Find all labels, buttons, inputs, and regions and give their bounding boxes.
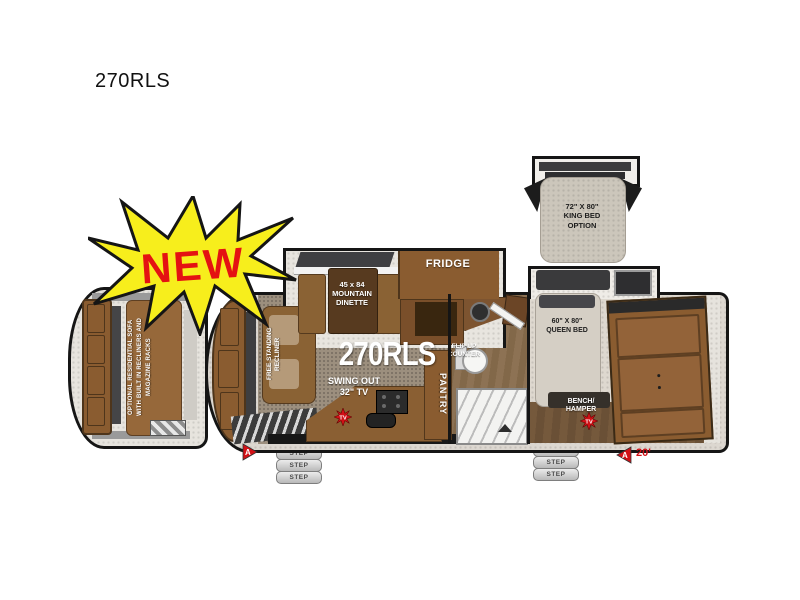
vanity-sink (470, 302, 490, 322)
wardrobe-door (615, 314, 701, 358)
wardrobe (606, 295, 713, 444)
king-bed-label: 72" X 80" KING BED OPTION (544, 202, 620, 230)
door-handle (658, 386, 661, 389)
tv-marker-label: TV (585, 419, 593, 425)
cabinet-door (87, 397, 105, 426)
burner (396, 404, 400, 408)
queen-bed-pillows (539, 295, 595, 308)
dinette-label: 45 x 84 MOUNTAIN DINETTE (326, 280, 378, 307)
awning-length-label: 20' (636, 447, 651, 459)
marker-a-label: A (622, 451, 628, 460)
wardrobe-top-trim (608, 298, 704, 314)
tv-marker-label: TV (339, 415, 347, 421)
burner (396, 395, 400, 399)
tv-marker: TV (334, 408, 352, 426)
queen-bed (535, 293, 601, 407)
bathroom-wall-right (527, 292, 530, 444)
pantry-label: PANTRY (426, 352, 448, 436)
cabinet-door (87, 335, 105, 364)
new-badge: NEW (88, 196, 298, 336)
wardrobe-door (617, 354, 704, 412)
bedroom-window (614, 270, 652, 296)
marker-a-label: A (245, 448, 251, 457)
new-badge-label: NEW (139, 238, 246, 292)
entry-step: STEP (276, 471, 322, 484)
awning-marker: A (616, 446, 632, 464)
king-headboard-bar (539, 162, 631, 171)
stove (376, 390, 408, 414)
bathroom-wall-left (448, 294, 451, 444)
cabinet-door (218, 350, 239, 388)
awning-marker: A (242, 443, 258, 461)
kitchen-sink (366, 413, 396, 428)
tv-marker: TV (580, 412, 598, 430)
page-title: 270RLS (95, 70, 170, 93)
burner (382, 395, 386, 399)
dinette-window (296, 252, 395, 267)
floorplan-page: 270RLS OPTIONAL RESIDENTIAL SOFA WITH BU… (0, 0, 800, 600)
entry-step: STEP (533, 468, 579, 481)
model-floor-label: 270RLS (339, 334, 431, 374)
headboard (536, 270, 610, 290)
fridge-label: FRIDGE (402, 258, 494, 271)
queen-bed-label: 60" X 80" QUEEN BED (537, 318, 597, 336)
cabinet-door (87, 366, 105, 395)
inset-entry-tile (150, 420, 186, 436)
shower (456, 388, 528, 445)
door-handle (657, 374, 660, 377)
burner (382, 404, 386, 408)
wardrobe-door (620, 408, 705, 438)
shower-door (458, 390, 526, 443)
